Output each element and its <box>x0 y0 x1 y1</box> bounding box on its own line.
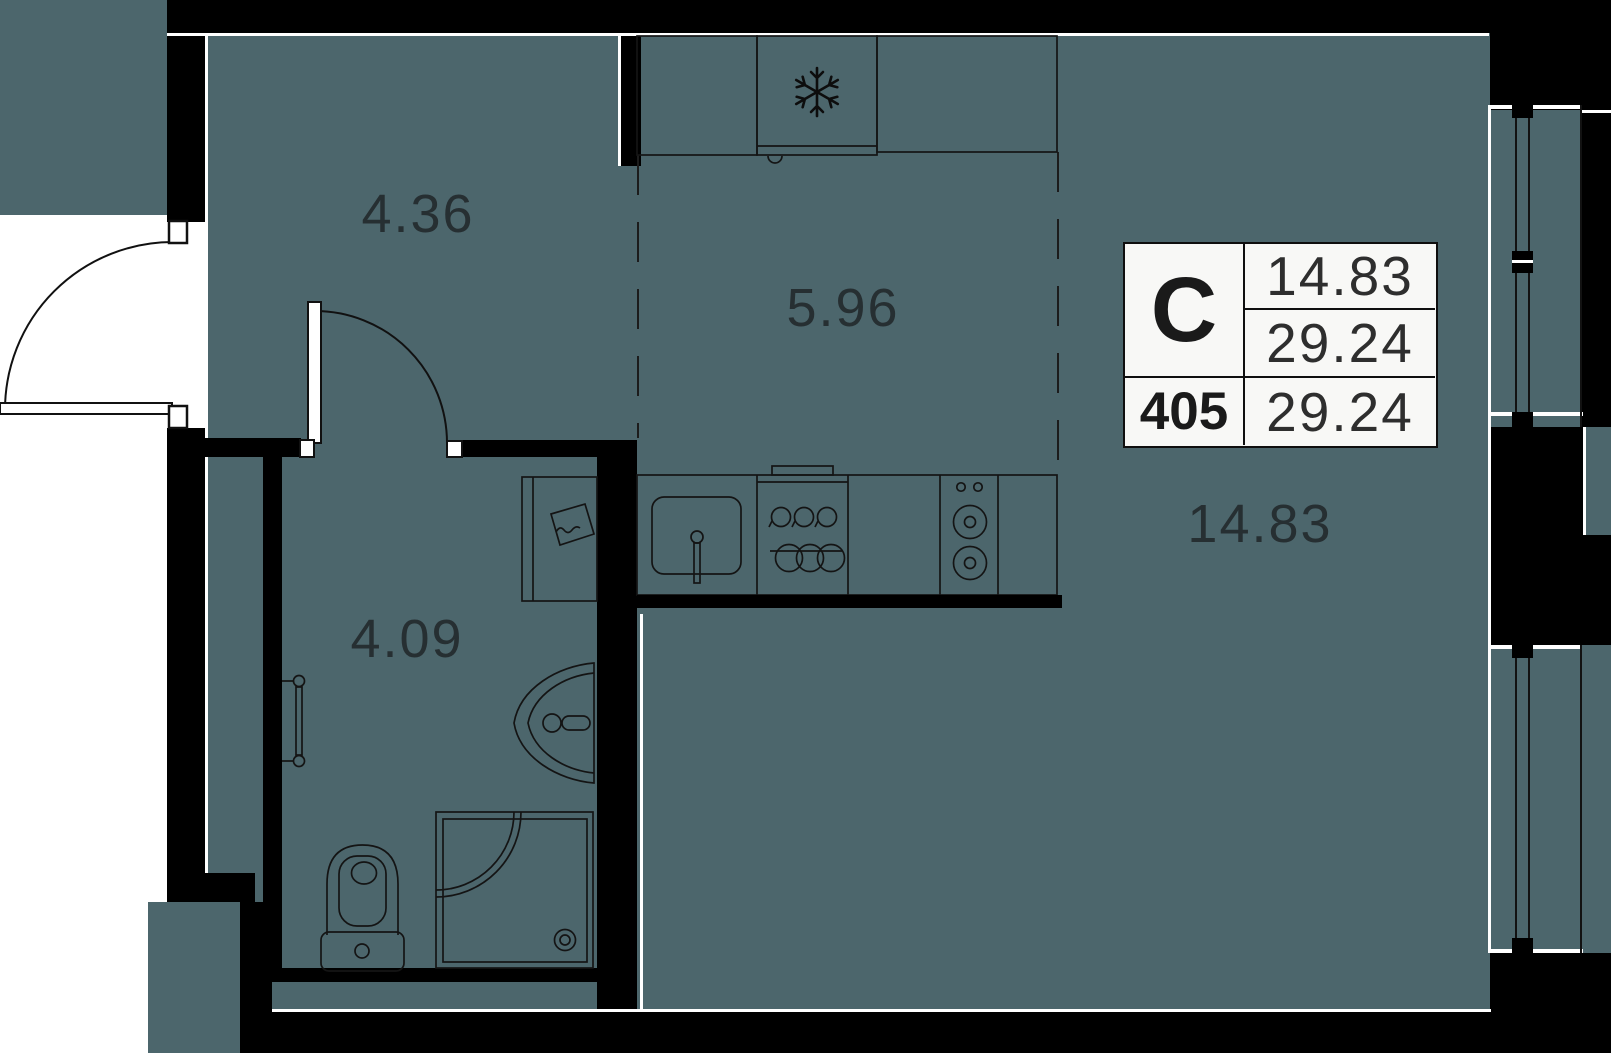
wall-hall-bath-left <box>167 438 301 457</box>
wall-bottom <box>272 1012 1491 1053</box>
window-bay-upper <box>1491 105 1580 427</box>
floor-plan: 4.36 5.96 4.09 14.83 С 405 14.83 29.24 2… <box>0 0 1611 1053</box>
wall-bath-bottom <box>263 968 599 982</box>
wall-window-pier-a <box>1491 427 1583 535</box>
wall-top <box>167 0 1490 33</box>
wall-bath-partition <box>263 457 282 970</box>
wall-left-step <box>167 873 255 902</box>
wall-left-mid <box>167 428 205 873</box>
window-bay-lower <box>1491 645 1580 953</box>
door-jamb <box>169 221 187 243</box>
room-label-living: 14.83 <box>1187 493 1332 555</box>
wall-window-pier-b <box>1491 535 1611 645</box>
wall-right-outer-upper <box>1582 110 1611 427</box>
unit-living-area: 14.83 <box>1266 244 1414 308</box>
unit-info-table: С 405 14.83 29.24 29.24 <box>1123 242 1438 448</box>
door-jamb <box>300 440 314 457</box>
unit-total-area: 29.24 <box>1266 311 1414 375</box>
unit-type-label: С <box>1125 244 1245 378</box>
wall-top-right-corner <box>1490 0 1611 110</box>
door-jamb <box>169 406 187 428</box>
wall-bath-right <box>597 440 637 1053</box>
wall-kitchen-stub <box>621 33 641 166</box>
balcony-strip-lower <box>1582 645 1611 953</box>
unit-total-area-repeat: 29.24 <box>1266 380 1414 444</box>
wall-bottom-right-corner <box>1490 953 1611 1053</box>
floor-neighbor-top-left <box>0 0 170 215</box>
room-label-kitchen: 5.96 <box>786 277 899 339</box>
room-label-bathroom: 4.09 <box>350 608 463 670</box>
balcony-strip-upper <box>1585 427 1611 535</box>
unit-number: 405 <box>1125 378 1245 445</box>
door-jamb <box>447 441 462 457</box>
entry-door <box>0 221 187 428</box>
floor-plan-drawing <box>0 0 1611 1053</box>
counter-base-band <box>637 595 1062 608</box>
room-label-hallway: 4.36 <box>361 183 474 245</box>
